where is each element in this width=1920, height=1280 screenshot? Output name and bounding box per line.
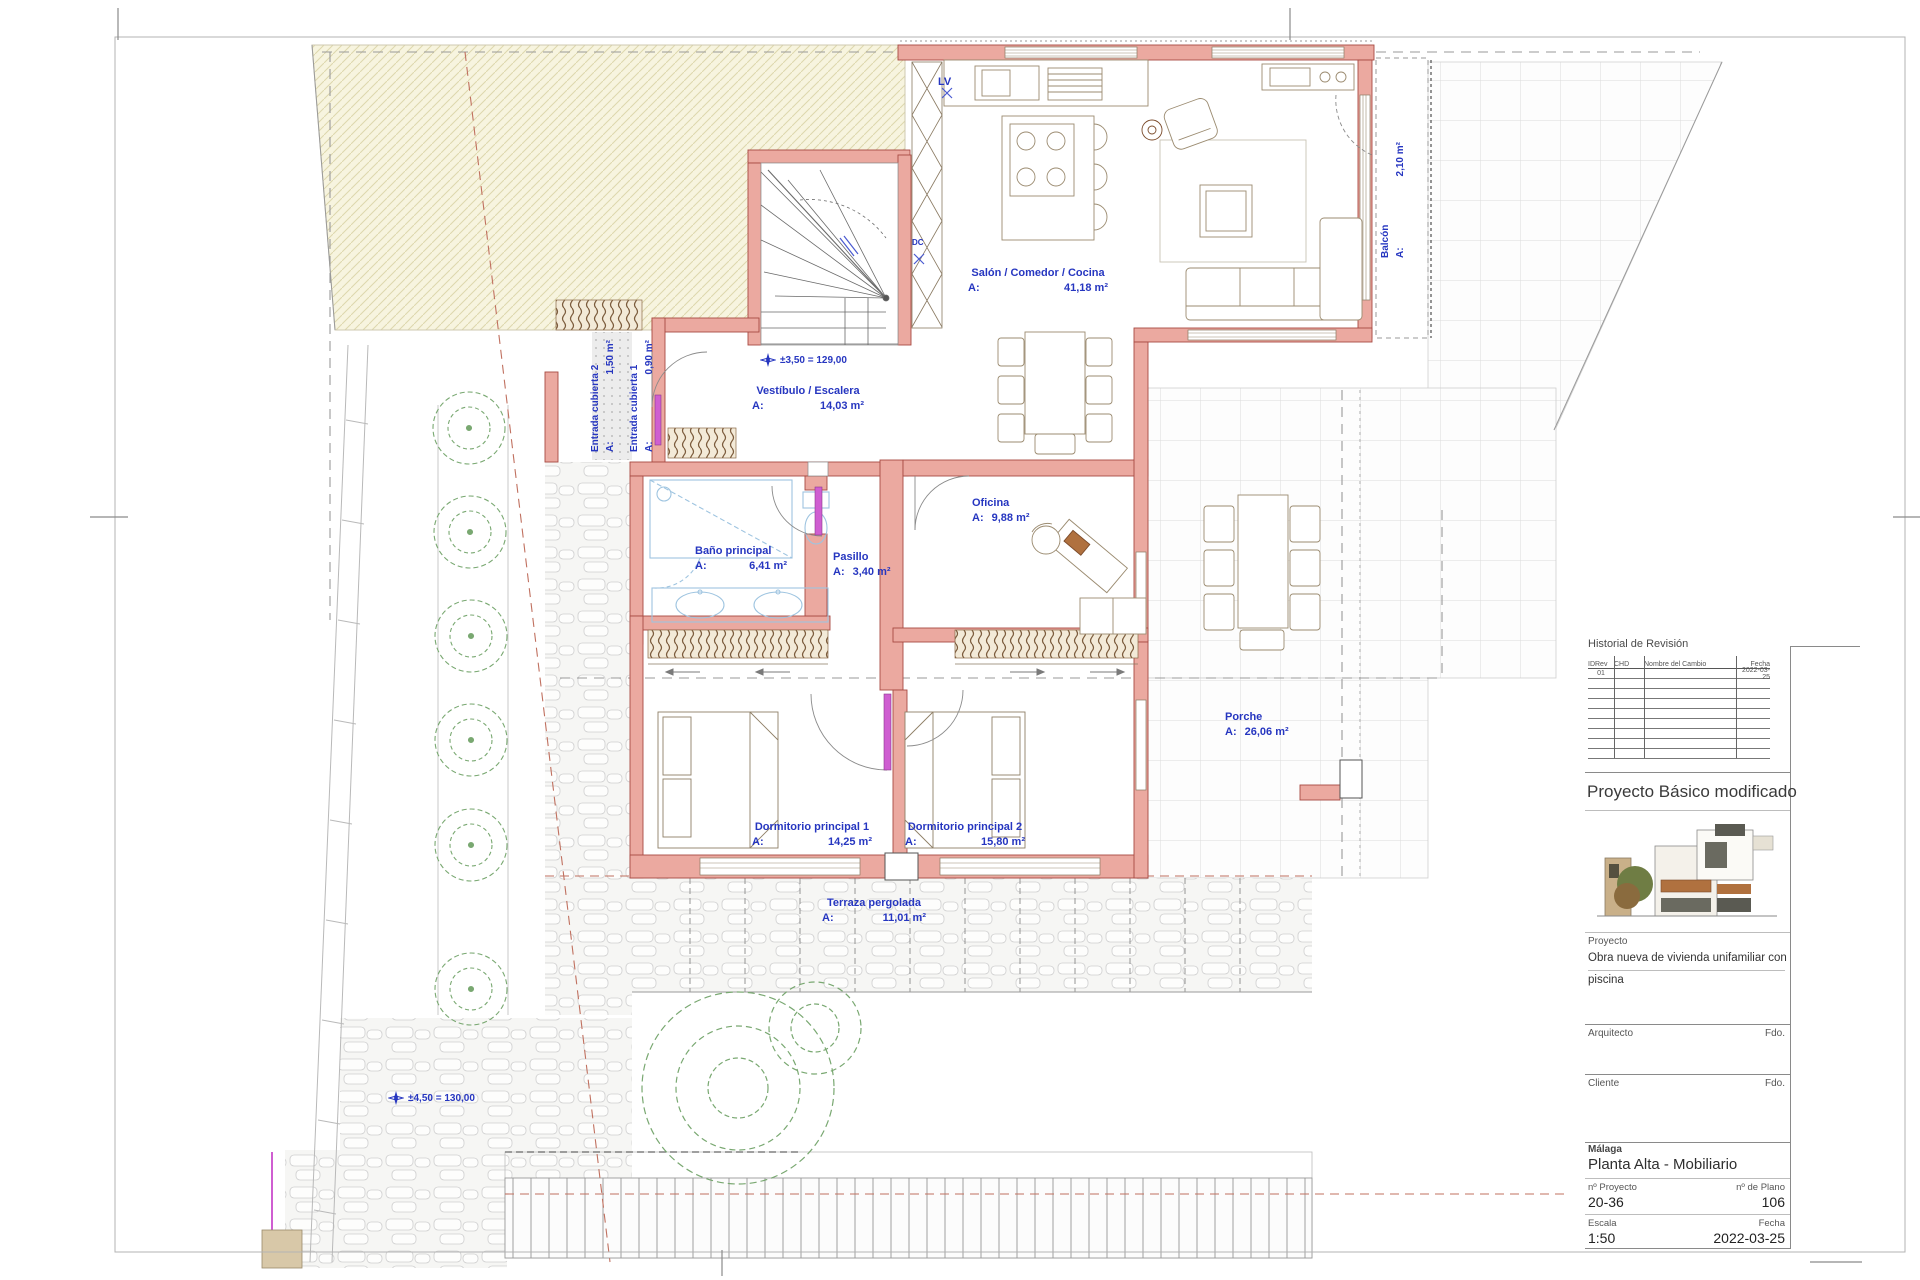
- title-block: Historial de Revisión IDRev CHD Nombre d…: [1585, 636, 1791, 1252]
- room-label-terraza: Terraza pergolada A:11,01 m²: [822, 896, 926, 927]
- room-area: 0,90 m²: [642, 340, 657, 374]
- elevation-thumbnail: [1597, 818, 1777, 928]
- room-name: Dormitorio principal 2: [905, 820, 1025, 835]
- revision-table: IDRev CHD Nombre del Cambio Fecha 01 202…: [1588, 656, 1770, 758]
- room-label-pasillo: Pasillo A:3,40 m²: [833, 550, 897, 581]
- room-name: Baño principal: [695, 544, 787, 559]
- n-proyecto-label: nº Proyecto: [1588, 1182, 1637, 1193]
- label-lv: LV: [938, 76, 951, 88]
- n-plano-value: 106: [1762, 1194, 1785, 1210]
- room-area: 41,18 m²: [1064, 281, 1108, 296]
- room-label-dorm2: Dormitorio principal 2 A:15,80 m²: [905, 820, 1025, 851]
- large-tree: [642, 982, 861, 1184]
- fecha-label: Fecha: [1759, 1218, 1785, 1229]
- room-area: 14,25 m²: [828, 835, 872, 850]
- room-area: 14,03 m²: [820, 399, 864, 414]
- room-area: 9,88 m²: [992, 511, 1030, 526]
- room-label-dorm1: Dormitorio principal 1 A:14,25 m²: [752, 820, 872, 851]
- room-area: 2,10 m²: [1393, 142, 1408, 176]
- office-furniture: [1032, 519, 1146, 634]
- cliente-label: Cliente: [1588, 1078, 1619, 1089]
- n-proyecto-value: 20-36: [1588, 1194, 1624, 1210]
- proyecto-line1: Obra nueva de vivienda unifamiliar con: [1588, 952, 1787, 964]
- cliente-fdo: Fdo.: [1765, 1078, 1785, 1089]
- kitchen: [944, 60, 1162, 240]
- room-area: 1,50 m²: [603, 340, 618, 374]
- room-name: Oficina: [972, 496, 1072, 511]
- porch-table: [1204, 495, 1320, 650]
- room-name: Entrada cubierta 2: [588, 340, 603, 452]
- arquitecto-fdo: Fdo.: [1765, 1028, 1785, 1039]
- drawing-sheet: Salón / Comedor / Cocina A:41,18 m² Vest…: [0, 0, 1920, 1280]
- room-area: 11,01 m²: [883, 911, 926, 926]
- room-label-entrada1: Entrada cubierta 1 A:0,90 m²: [627, 340, 657, 452]
- room-name: Balcón: [1378, 142, 1393, 258]
- room-name: Terraza pergolada: [822, 896, 926, 911]
- room-area: 15,80 m²: [981, 835, 1025, 850]
- room-name: Dormitorio principal 1: [752, 820, 872, 835]
- room-label-bano: Baño principal A:6,41 m²: [695, 544, 787, 575]
- level-marker-lower: ±4,50 = 130,00: [388, 1090, 475, 1106]
- room-area: 3,40 m²: [853, 565, 891, 580]
- trees-row: [433, 392, 507, 1025]
- room-area: 26,06 m²: [1245, 725, 1289, 740]
- room-label-entrada2: Entrada cubierta 2 A:1,50 m²: [588, 340, 618, 452]
- label-dc: DC: [912, 238, 924, 247]
- room-name: Vestíbulo / Escalera: [752, 384, 864, 399]
- tall-cabinets: [912, 62, 942, 328]
- level-marker-icon: [388, 1090, 404, 1106]
- room-label-vestibulo: Vestíbulo / Escalera A:14,03 m²: [752, 384, 864, 415]
- room-name: Salón / Comedor / Cocina: [968, 266, 1108, 281]
- room-area: 6,41 m²: [749, 559, 787, 574]
- room-name: Pasillo: [833, 550, 897, 565]
- dining-table: [998, 332, 1112, 454]
- fecha-value: 2022-03-25: [1713, 1230, 1785, 1246]
- south-pier: [885, 853, 918, 880]
- proyecto-line2: piscina: [1588, 974, 1624, 986]
- plan-title: Planta Alta - Mobiliario: [1588, 1156, 1737, 1173]
- room-name: Porche: [1225, 710, 1305, 725]
- level-marker-upper: ±3,50 = 129,00: [760, 352, 847, 368]
- room-label-oficina: Oficina A:9,88 m²: [972, 496, 1072, 527]
- living-area: [1160, 64, 1362, 320]
- escala-value: 1:50: [1588, 1230, 1615, 1246]
- porch-pillar: [1340, 760, 1362, 798]
- city-label: Málaga: [1588, 1144, 1622, 1155]
- room-name: Entrada cubierta 1: [627, 340, 642, 452]
- room-label-balcon: Balcón A:2,10 m²: [1378, 142, 1408, 258]
- revision-history-title: Historial de Revisión: [1588, 638, 1688, 650]
- project-status: Proyecto Básico modificado: [1587, 782, 1797, 802]
- arquitecto-label: Arquitecto: [1588, 1028, 1633, 1039]
- n-plano-label: nº de Plano: [1736, 1182, 1785, 1193]
- level-marker-icon: [760, 352, 776, 368]
- room-label-porche: Porche A:26,06 m²: [1225, 710, 1305, 741]
- revision-row: 01 2022-03-25: [1588, 669, 1770, 679]
- proyecto-label: Proyecto: [1588, 936, 1627, 947]
- spiral-stair: [761, 163, 898, 345]
- escala-label: Escala: [1588, 1218, 1617, 1229]
- room-label-salon: Salón / Comedor / Cocina A:41,18 m²: [968, 266, 1108, 297]
